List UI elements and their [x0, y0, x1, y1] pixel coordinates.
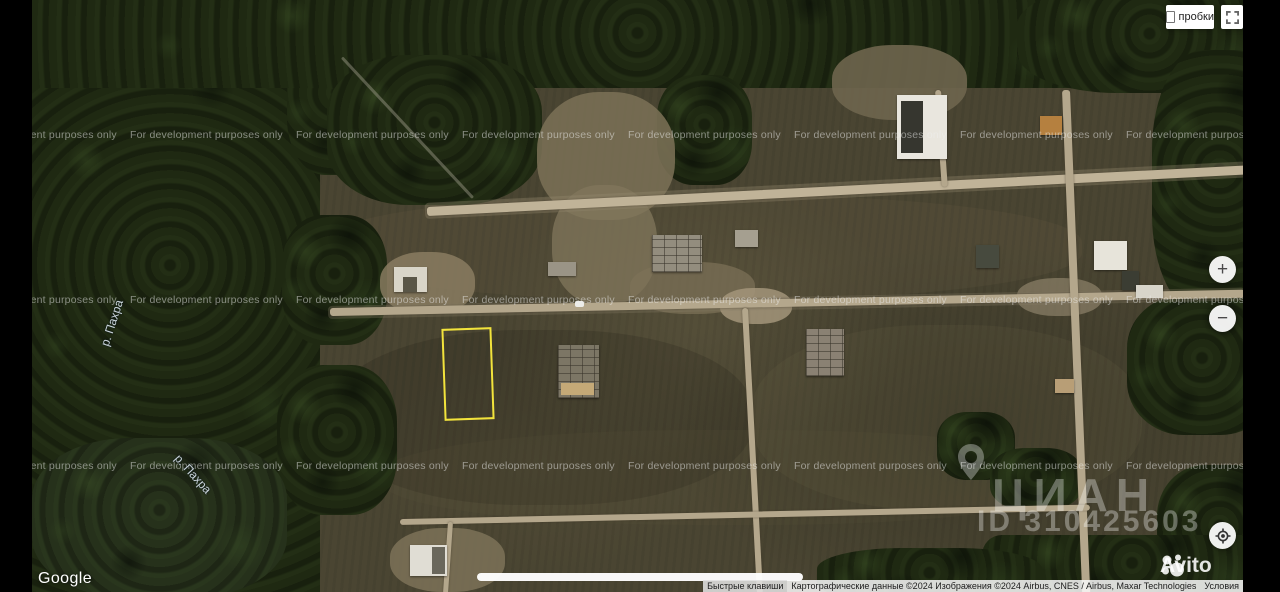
left-letterbox-bar: [0, 0, 32, 592]
traffic-toggle-button[interactable]: пробки: [1166, 5, 1214, 29]
screenshot-stage: For development purposes only For develo…: [0, 0, 1280, 592]
zoom-in-button[interactable]: +: [1209, 256, 1236, 283]
dev-watermark: For development purposes only: [628, 129, 781, 141]
dev-watermark: For development purposes only: [462, 294, 615, 306]
zoom-out-button[interactable]: −: [1209, 305, 1236, 332]
dev-watermark: For development purposes only: [628, 460, 781, 472]
dev-watermark: For development purposes only: [296, 129, 449, 141]
dev-watermark: For development purposes only: [960, 129, 1113, 141]
building-large-house: [897, 95, 947, 159]
building-roof-dark: [901, 101, 923, 153]
building-white-roof: [1094, 241, 1127, 270]
satellite-map[interactable]: For development purposes only For develo…: [32, 0, 1243, 592]
building-section-gray: [432, 547, 445, 574]
dev-watermark: For development purposes only: [296, 460, 449, 472]
target-icon: [1215, 528, 1231, 544]
right-letterbox-bar: [1243, 0, 1280, 592]
building-tan-small: [1055, 379, 1074, 393]
traffic-label: пробки: [1179, 11, 1214, 23]
traffic-checkbox[interactable]: [1166, 11, 1175, 23]
dev-watermark: For development purposes only: [462, 129, 615, 141]
dev-watermark: For development purposes only: [32, 129, 117, 141]
dev-watermark: For development purposes only: [1126, 129, 1243, 141]
lumber-pile: [561, 383, 594, 395]
keyboard-shortcuts-button[interactable]: Быстрые клавиши: [703, 580, 787, 592]
avito-watermark: Avito: [1160, 554, 1212, 578]
google-logo[interactable]: Google: [38, 570, 92, 588]
forest-blob: [282, 215, 387, 345]
building-white-u: [394, 267, 427, 292]
dev-watermark: For development purposes only: [296, 294, 449, 306]
foundation-structure: [806, 329, 844, 376]
foundation-structure: [652, 235, 702, 272]
dev-watermark: For development purposes only: [960, 294, 1113, 306]
fullscreen-button[interactable]: [1221, 5, 1243, 29]
dev-watermark: For development purposes only: [32, 460, 117, 472]
building-courtyard: [403, 277, 417, 292]
dev-watermark: For development purposes only: [628, 294, 781, 306]
dev-watermark: For development purposes only: [130, 460, 283, 472]
terms-link[interactable]: Условия: [1200, 580, 1243, 592]
foundation-structure: [558, 345, 599, 398]
map-attribution-bar: Быстрые клавиши Картографические данные …: [703, 580, 1243, 592]
fullscreen-icon: [1226, 11, 1239, 24]
dev-watermark: For development purposes only: [130, 294, 283, 306]
dev-watermark: For development purposes only: [794, 294, 947, 306]
avito-logo-icon: [1160, 553, 1186, 579]
plot-outline-highlight: [441, 327, 494, 421]
listing-id-watermark: ID 310425603: [977, 505, 1202, 539]
dev-watermark: For development purposes only: [1126, 294, 1243, 306]
dev-watermark: For development purposes only: [794, 460, 947, 472]
building-bottom-white: [410, 545, 447, 576]
dev-watermark: For development purposes only: [794, 129, 947, 141]
dev-watermark: For development purposes only: [462, 460, 615, 472]
map-data-credit: Картографические данные ©2024 Изображени…: [787, 580, 1200, 592]
dev-watermark: For development purposes only: [32, 294, 117, 306]
map-pin-icon: [956, 442, 986, 482]
building-dark: [976, 245, 999, 268]
building-small: [548, 262, 576, 276]
forest-blob: [277, 365, 397, 515]
dev-watermark: For development purposes only: [130, 129, 283, 141]
my-location-button[interactable]: [1209, 522, 1236, 549]
building-small: [735, 230, 758, 247]
